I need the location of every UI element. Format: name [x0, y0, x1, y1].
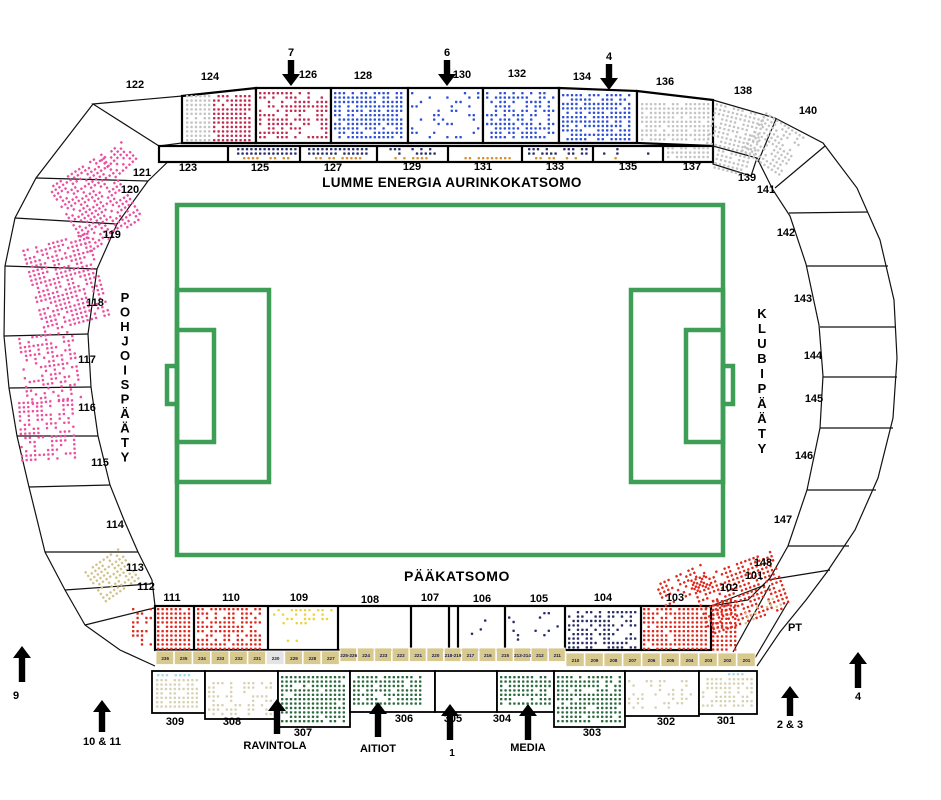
section-label-145: 145 [805, 393, 823, 405]
section-label-119: 119 [103, 229, 121, 241]
svg-text:S: S [121, 377, 130, 392]
gate-7-label: 7 [288, 47, 294, 59]
section-label-134: 134 [573, 71, 592, 83]
row-cell-label: 212 [536, 653, 544, 658]
row-cell-label: 205 [667, 658, 675, 663]
row-cell-label: 232 [235, 656, 243, 661]
section-label-115: 115 [91, 457, 109, 469]
seat-block [132, 608, 152, 646]
svg-text:Ä: Ä [757, 411, 767, 426]
section-label-140: 140 [799, 105, 817, 117]
seat-block [706, 103, 765, 156]
section-label-111: 111 [163, 592, 180, 604]
section-130-shape[interactable] [408, 88, 483, 143]
row-cell-label: 234 [198, 656, 206, 661]
north-end-title: POHJOISPÄÄTY [120, 290, 130, 465]
row-cell-label: 206 [648, 658, 656, 663]
row-cell-label: 228 [309, 656, 317, 661]
section-label-141: 141 [757, 184, 775, 196]
section-301-shape[interactable] [699, 671, 757, 714]
sun-stand-title: LUMME ENERGIA AURINKOKATSOMO [322, 175, 582, 190]
main-stand-title: PÄÄKATSOMO [404, 568, 510, 584]
section-label-302: 302 [657, 716, 675, 728]
section-label-112: 112 [137, 581, 155, 593]
row-cell-label: 217 [467, 653, 475, 658]
row-cell-label: 207 [629, 658, 637, 663]
section-label-125: 125 [251, 162, 269, 174]
gate-4-top-arrow-icon [600, 64, 618, 90]
gate-10-11-arrow-icon [93, 700, 111, 732]
svg-text:I: I [123, 363, 127, 378]
gate-4-top: 4 [600, 51, 618, 90]
pitch [167, 205, 733, 555]
section-label-131: 131 [474, 161, 492, 173]
row-cell-label: 227 [327, 656, 335, 661]
row-cell-label: 224 [362, 653, 370, 658]
row-cell-label: 202 [724, 658, 732, 663]
svg-text:P: P [121, 290, 130, 305]
row-cell-label: 229 [290, 656, 298, 661]
svg-text:Ä: Ä [757, 396, 767, 411]
gate-7-arrow-icon [282, 60, 300, 86]
row-cell-label: 204 [686, 658, 694, 663]
section-label-107: 107 [421, 592, 439, 604]
row-cell-label: 223 [380, 653, 388, 658]
row-cell-label: 203 [705, 658, 713, 663]
section-label-118: 118 [86, 297, 104, 309]
vertical-stand-names: POHJOISPÄÄTYKLUBIPÄÄTY [120, 290, 767, 465]
section-label-143: 143 [794, 293, 812, 305]
row-cell-label: 210 [572, 658, 580, 663]
gate-9: 9 [13, 646, 31, 702]
row-cell-label: 236 [161, 656, 169, 661]
section-label-142: 142 [777, 227, 795, 239]
section-label-301: 301 [717, 715, 735, 727]
section-label-129: 129 [403, 161, 421, 173]
seat-block [614, 157, 616, 159]
row-cell-label: 231 [253, 656, 261, 661]
row-cell-label: 211 [554, 653, 562, 658]
section-label-120: 120 [121, 184, 139, 196]
seat-block [84, 548, 140, 603]
section-label-147: 147 [774, 514, 792, 526]
svg-text:Y: Y [758, 441, 767, 456]
section-label-303: 303 [583, 727, 601, 739]
gate-6-label: 6 [444, 47, 450, 59]
svg-text:P: P [121, 392, 130, 407]
section-label-144: 144 [804, 350, 823, 362]
gate-aitiot-label: AITIOT [360, 743, 396, 755]
gate-2-3: 2 & 3 [777, 686, 803, 731]
svg-text:O: O [120, 348, 130, 363]
section-label-146: 146 [795, 450, 813, 462]
section-label-304: 304 [493, 713, 512, 725]
seat-block [712, 600, 736, 651]
section-126-shape[interactable] [256, 88, 331, 143]
pt-label: PT [788, 622, 802, 634]
row-cell-label: 218-219 [445, 653, 462, 658]
row-cell-label: 220 [432, 653, 440, 658]
svg-text:Ä: Ä [120, 406, 130, 421]
row-cell-label: 213-214 [514, 653, 531, 658]
gate-1-label: 1 [449, 748, 455, 759]
section-label-308: 308 [223, 716, 241, 728]
stadium-map-svg: 236235234233232231230229228227225-226224… [0, 0, 941, 800]
gate-4-right-label: 4 [855, 691, 862, 703]
section-label-128: 128 [354, 70, 372, 82]
section-label-124: 124 [201, 71, 220, 83]
svg-text:T: T [758, 426, 766, 441]
section-305-shape[interactable] [435, 671, 497, 712]
section-label-136: 136 [656, 76, 674, 88]
section-label-106: 106 [473, 593, 491, 605]
svg-text:P: P [758, 381, 767, 396]
section-label-113: 113 [126, 562, 144, 574]
svg-text:L: L [758, 321, 766, 336]
section-label-101: 101 [745, 570, 763, 582]
seat-block [741, 112, 805, 176]
row-cell-label: 201 [743, 658, 751, 663]
gate-9-label: 9 [13, 690, 19, 702]
svg-text:T: T [121, 435, 129, 450]
section-label-108: 108 [361, 594, 379, 606]
row-cell-label: 235 [180, 656, 188, 661]
section-label-137: 137 [683, 161, 701, 173]
section-label-102: 102 [720, 582, 738, 594]
gate-ravintola-label: RAVINTOLA [243, 740, 306, 752]
gate-4-right: 4 [849, 652, 867, 703]
section-label-130: 130 [453, 69, 471, 81]
section-label-133: 133 [546, 161, 564, 173]
gate-10-11-label: 10 & 11 [83, 736, 121, 748]
seat-block [18, 399, 76, 461]
section-302-shape[interactable] [625, 671, 699, 716]
club-end-title: KLUBIPÄÄTY [757, 306, 767, 456]
svg-text:K: K [757, 306, 767, 321]
section-label-104: 104 [594, 592, 613, 604]
svg-text:Ä: Ä [120, 421, 130, 436]
section-label-117: 117 [78, 354, 96, 366]
svg-text:H: H [120, 319, 129, 334]
svg-text:J: J [121, 334, 128, 349]
svg-text:U: U [757, 336, 766, 351]
seat-block [48, 153, 144, 253]
section-label-114: 114 [106, 519, 125, 531]
section-label-148: 148 [754, 557, 772, 569]
row-cell-label: 209 [591, 658, 599, 663]
seat-block [18, 330, 82, 405]
gate-10-11: 10 & 11 [83, 700, 121, 748]
section-label-121: 121 [133, 167, 151, 179]
svg-text:Y: Y [121, 450, 130, 465]
gate-media-label: MEDIA [510, 742, 546, 754]
gate-4-right-arrow-icon [849, 652, 867, 688]
section-308-shape[interactable] [205, 671, 278, 719]
section-136-shape[interactable] [637, 91, 713, 146]
section-label-127: 127 [324, 162, 342, 174]
row-cell-label: 215 [501, 653, 509, 658]
row-cell-label: 233 [217, 656, 225, 661]
row-cell-label: 216 [484, 653, 492, 658]
section-label-116: 116 [78, 402, 96, 414]
row-cell-label: 230 [272, 656, 280, 661]
section-label-306: 306 [395, 713, 413, 725]
gate-2-3-label: 2 & 3 [777, 719, 803, 731]
section-label-138: 138 [734, 85, 752, 97]
svg-text:O: O [120, 305, 130, 320]
svg-text:B: B [757, 351, 766, 366]
gate-2-3-arrow-icon [781, 686, 799, 716]
row-cell-label: 225-226 [340, 653, 357, 658]
section-label-123: 123 [179, 162, 197, 174]
gate-4-top-label: 4 [606, 51, 613, 63]
section-label-309: 309 [166, 716, 184, 728]
svg-text:I: I [760, 366, 764, 381]
row-cell-label: 222 [397, 653, 405, 658]
section-label-110: 110 [222, 592, 240, 604]
gate-9-arrow-icon [13, 646, 31, 682]
section-label-307: 307 [294, 727, 312, 739]
section-label-122: 122 [126, 79, 144, 91]
section-label-105: 105 [530, 593, 548, 605]
section-label-132: 132 [508, 68, 526, 80]
section-label-139: 139 [738, 172, 756, 184]
stadium-seat-map: 236235234233232231230229228227225-226224… [0, 0, 941, 800]
section-label-135: 135 [619, 161, 637, 173]
gate-7: 7 [282, 47, 300, 86]
row-cell-label: 221 [414, 653, 422, 658]
row-cell-label: 208 [610, 658, 618, 663]
section-122-shape[interactable] [93, 96, 182, 146]
section-label-126: 126 [299, 69, 317, 81]
section-label-109: 109 [290, 592, 308, 604]
section-label-103: 103 [666, 592, 684, 604]
